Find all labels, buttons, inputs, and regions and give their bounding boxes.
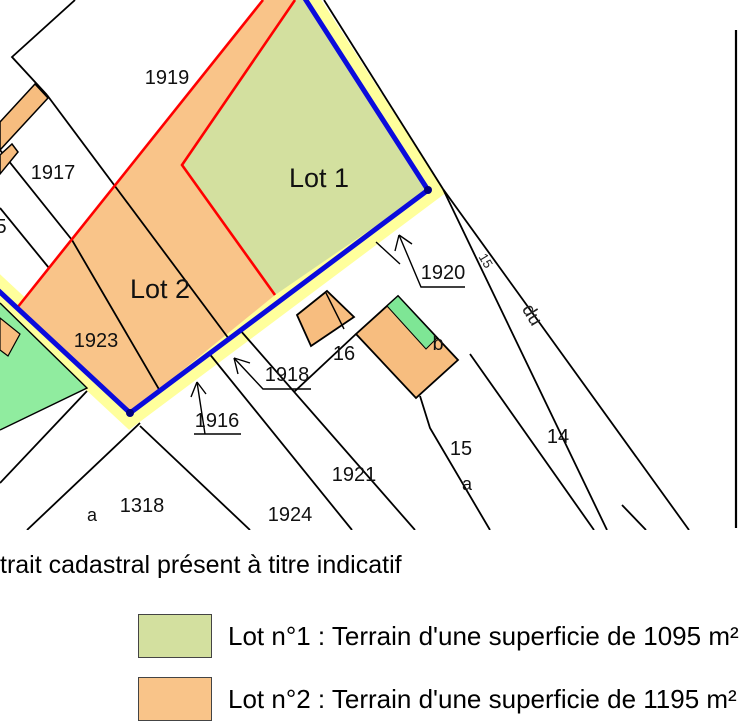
- parcel-label-1921: 1921: [332, 464, 377, 486]
- arrow-1920-head: [395, 235, 412, 251]
- cadastral-map-canvas: 1919 1917 5 Lot 1 Lot 2 1923 1920 1918 1…: [0, 0, 739, 530]
- orange-path-band: [0, 84, 48, 150]
- small-building: [297, 291, 354, 346]
- cadastral-map: 1919 1917 5 Lot 1 Lot 2 1923 1920 1918 1…: [0, 0, 739, 530]
- parcel-label-15: 15: [450, 438, 472, 460]
- parcel-label-5: 5: [0, 216, 7, 238]
- parcel-boundary-15-14: [470, 354, 594, 530]
- arrow-label-1920: 1920: [421, 262, 466, 284]
- boundary-corner-dot-east: [424, 186, 432, 194]
- parcel-boundary-1919-west: [12, 0, 75, 95]
- parcel-label-1318a: a: [87, 505, 98, 525]
- road-edge-right: [443, 189, 689, 530]
- parcel-boundary-15-west: [420, 396, 490, 530]
- legend-swatch-lot1: [138, 614, 212, 658]
- parcel-branch-line: [622, 505, 646, 530]
- parcel-label-15a: a: [462, 474, 473, 494]
- legend-label-lot1: Lot n°1 : Terrain d'une superficie de 10…: [228, 621, 739, 652]
- arrow-label-1916: 1916: [195, 410, 240, 432]
- building-label-b: b: [432, 333, 443, 355]
- parcel-label-1917: 1917: [31, 162, 76, 184]
- parcel-boundary-5-south: [0, 208, 49, 268]
- legend-label-lot2: Lot n°2 : Terrain d'une superficie de 11…: [228, 684, 737, 715]
- caption-text: trait cadastral présent à titre indicati…: [0, 551, 739, 580]
- parcel-label-1924: 1924: [268, 504, 313, 526]
- arrow-label-1918: 1918: [265, 364, 310, 386]
- road-label-15: 15: [476, 251, 496, 271]
- parcel-label-1318: 1318: [120, 495, 165, 517]
- parcel-label-14: 14: [547, 426, 569, 448]
- boundary-corner-dot-south: [126, 409, 134, 417]
- parcel-label-1923: 1923: [74, 330, 119, 352]
- parcel-label-16: 16: [333, 343, 355, 365]
- legend-item-lot2: Lot n°2 : Terrain d'une superficie de 11…: [138, 677, 737, 721]
- lot1-label: Lot 1: [289, 163, 349, 193]
- lot2-label: Lot 2: [130, 274, 190, 304]
- legend-item-lot1: Lot n°1 : Terrain d'une superficie de 10…: [138, 614, 739, 658]
- parcel-label-1919: 1919: [145, 67, 190, 89]
- legend-swatch-lot2: [138, 677, 212, 721]
